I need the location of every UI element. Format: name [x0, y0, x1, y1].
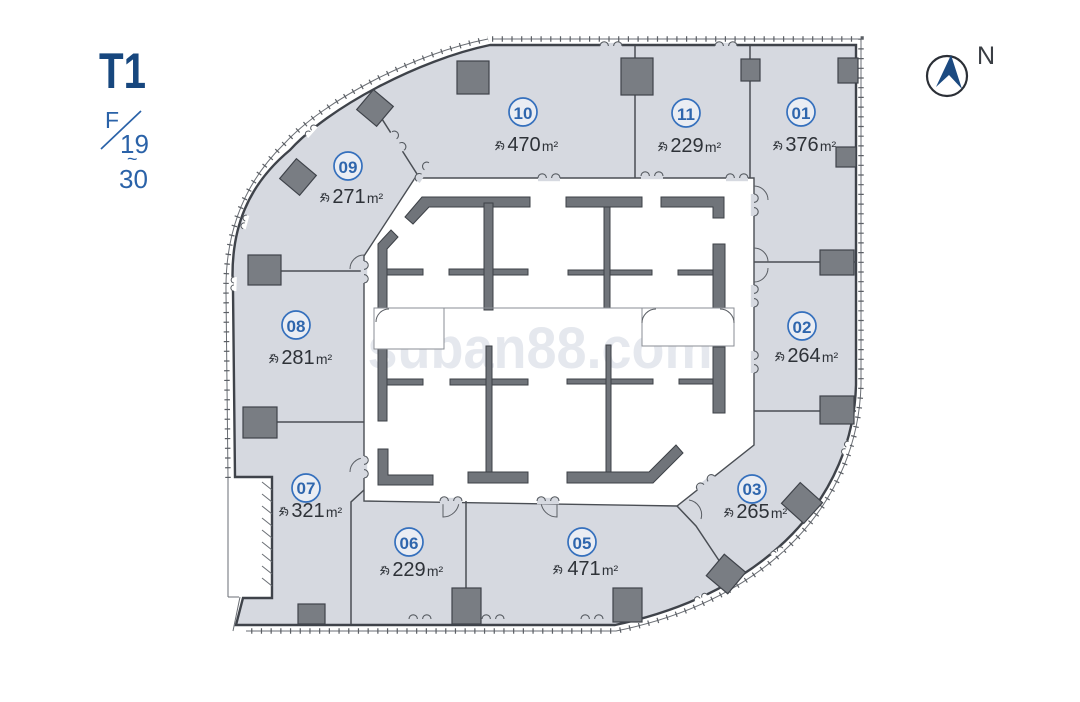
svg-text:m²: m² — [820, 138, 837, 154]
svg-text:m²: m² — [771, 505, 788, 521]
svg-text:471: 471 — [567, 558, 600, 580]
svg-text:229: 229 — [392, 559, 425, 581]
svg-text:271: 271 — [332, 186, 365, 208]
svg-text:11: 11 — [677, 105, 695, 124]
svg-text:265: 265 — [736, 501, 769, 523]
svg-text:10: 10 — [514, 104, 533, 123]
svg-text:m²: m² — [542, 138, 559, 154]
svg-text:229: 229 — [670, 135, 703, 157]
svg-text:m²: m² — [367, 190, 384, 206]
svg-text:264: 264 — [787, 345, 820, 367]
svg-text:m²: m² — [427, 563, 444, 579]
svg-text:07: 07 — [297, 479, 316, 498]
svg-text:m²: m² — [602, 562, 619, 578]
svg-text:08: 08 — [287, 317, 306, 336]
svg-text:30: 30 — [119, 164, 148, 194]
svg-text:281: 281 — [281, 347, 314, 369]
svg-text:03: 03 — [743, 480, 762, 499]
svg-text:05: 05 — [573, 534, 592, 553]
svg-text:m²: m² — [326, 504, 343, 520]
svg-text:321: 321 — [291, 500, 324, 522]
svg-text:N: N — [977, 42, 995, 70]
svg-text:06: 06 — [400, 534, 419, 553]
svg-text:m²: m² — [316, 351, 333, 367]
svg-text:470: 470 — [507, 134, 540, 156]
svg-text:T1: T1 — [99, 43, 146, 99]
svg-text:m²: m² — [822, 349, 839, 365]
svg-text:376: 376 — [785, 134, 818, 156]
svg-text:01: 01 — [792, 104, 811, 123]
svg-text:02: 02 — [793, 318, 812, 337]
svg-text:F: F — [105, 107, 119, 133]
svg-text:m²: m² — [705, 139, 722, 155]
svg-text:09: 09 — [339, 158, 358, 177]
